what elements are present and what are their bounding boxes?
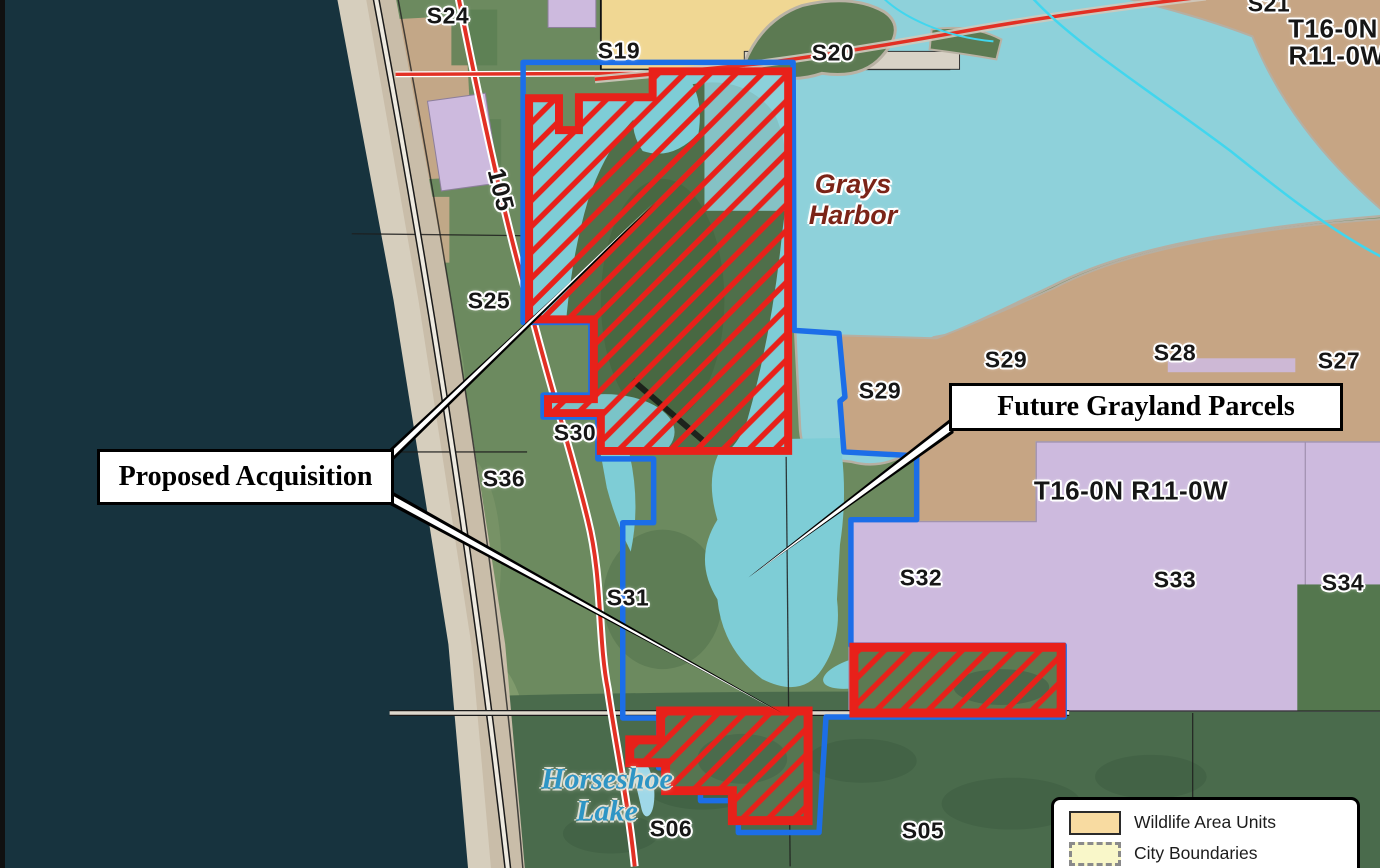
section-label-s25: S25 <box>468 288 510 315</box>
section-label-s24: S24 <box>427 3 469 30</box>
legend-label-wildlife: Wildlife Area Units <box>1134 812 1276 833</box>
legend-label-city: City Boundaries <box>1134 843 1258 864</box>
section-label-s30: S30 <box>554 420 596 447</box>
grays-harbor-line1: Grays <box>809 169 898 200</box>
section-label-s29-water: S29 <box>859 378 901 405</box>
map-legend: Wildlife Area Units City Boundaries <box>1051 797 1360 868</box>
section-label-s19: S19 <box>598 38 640 65</box>
section-label-s20: S20 <box>812 40 854 67</box>
city-boundaries-swatch <box>1069 842 1121 866</box>
legend-row-wildlife: Wildlife Area Units <box>1069 807 1357 838</box>
horseshoe-lake-label: Horseshoe Lake <box>541 764 673 827</box>
grays-harbor-label: Grays Harbor <box>809 169 898 231</box>
future-grayland-callout: Future Grayland Parcels <box>949 383 1343 431</box>
proposed-acquisition-callout: Proposed Acquisition <box>97 449 394 505</box>
township-label-mid: T16-0N R11-0W <box>1034 476 1228 507</box>
township-label-top-line2: R11-0W <box>1289 41 1380 72</box>
section-label-s28: S28 <box>1154 340 1196 367</box>
s34-forest-patch <box>1297 584 1380 711</box>
legend-row-city: City Boundaries <box>1069 838 1357 868</box>
section-label-s36: S36 <box>483 466 525 493</box>
map-root: S24 S19 S20 S21 S25 S29 S28 S27 S29 S30 … <box>0 0 1380 868</box>
section-label-s21: S21 <box>1248 0 1290 18</box>
section-label-s32: S32 <box>900 565 942 592</box>
section-label-s05: S05 <box>902 818 944 845</box>
grays-harbor-line2: Harbor <box>809 200 898 231</box>
section-label-s27: S27 <box>1318 348 1360 375</box>
section-label-s29-east: S29 <box>985 347 1027 374</box>
map-canvas <box>5 0 1380 868</box>
section-label-s33: S33 <box>1154 567 1196 594</box>
lavender-parcel-small <box>548 0 596 27</box>
horseshoe-lake-line1: Horseshoe <box>541 764 673 796</box>
section-label-s31: S31 <box>607 585 649 612</box>
wildlife-area-swatch <box>1069 811 1121 835</box>
section-label-s34: S34 <box>1322 570 1364 597</box>
proposed-acquisition-parcel-east <box>854 647 1061 713</box>
horseshoe-lake-line2: Lake <box>541 795 673 827</box>
